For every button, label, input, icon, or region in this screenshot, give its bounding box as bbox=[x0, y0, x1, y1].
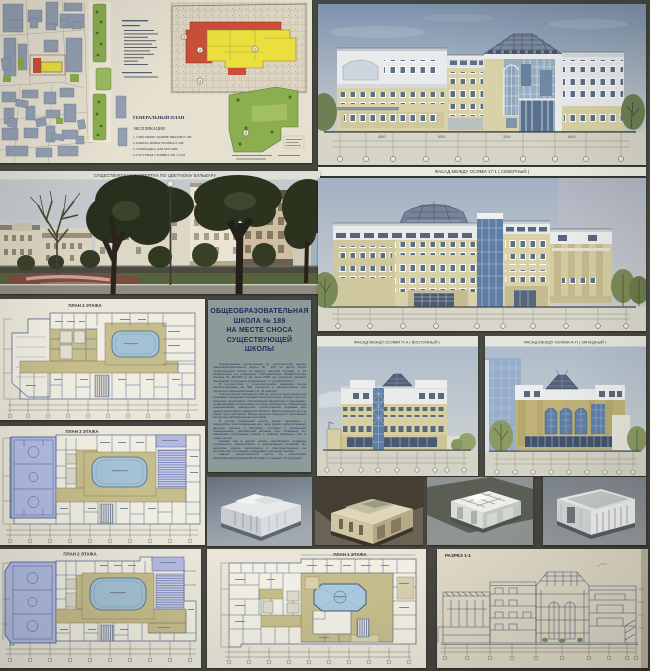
svg-text:3: 3 bbox=[183, 35, 185, 39]
svg-text:ПЛАН 4 ЭТАЖА: ПЛАН 4 ЭТАЖА bbox=[68, 303, 102, 308]
svg-text:2: 2 bbox=[199, 48, 201, 52]
svg-text:ФАСАД МЕЖДУ ОСЯМИ П-А ( ВОСТОЧ: ФАСАД МЕЖДУ ОСЯМИ П-А ( ВОСТОЧНЫЙ ) bbox=[354, 339, 440, 344]
svg-text:6000: 6000 bbox=[438, 135, 446, 139]
svg-text:2. ШКОЛА-НОВОСТРОЙКА N 189: 2. ШКОЛА-НОВОСТРОЙКА N 189 bbox=[133, 140, 184, 145]
svg-text:РАЗРЕЗ 1-1: РАЗРЕЗ 1-1 bbox=[445, 553, 471, 558]
svg-text:ПЛАН 3 ЭТАЖА: ПЛАН 3 ЭТАЖА bbox=[65, 429, 99, 434]
svg-text:ПЛАН 2 ЭТАЖА: ПЛАН 2 ЭТАЖА bbox=[63, 552, 97, 557]
svg-text:ГЕНЕРАЛЬНЫЙ ПЛАН: ГЕНЕРАЛЬНЫЙ ПЛАН bbox=[133, 115, 185, 120]
svg-text:ПЛАН 1 ЭТАЖА: ПЛАН 1 ЭТАЖА bbox=[333, 552, 367, 557]
svg-text:ФАСАД МЕЖДУ ОСЯМИ А-П ( ЗАПАДН: ФАСАД МЕЖДУ ОСЯМИ А-П ( ЗАПАДНЫЙ ) bbox=[524, 339, 608, 344]
svg-text:СУЩЕСТВУЮЩАЯ РАЗВЕРТКА ПО ЦВЕТ: СУЩЕСТВУЮЩАЯ РАЗВЕРТКА ПО ЦВЕТНОМУ БУЛЬВ… bbox=[94, 173, 217, 178]
svg-text:1: 1 bbox=[254, 47, 256, 51]
svg-text:4500: 4500 bbox=[378, 135, 386, 139]
svg-text:ЭКСПЛИКАЦИЯ: ЭКСПЛИКАЦИЯ bbox=[133, 126, 165, 131]
svg-text:6000: 6000 bbox=[568, 135, 576, 139]
svg-text:3. ПЛОЩАДКА ДЛЯ МУСОРА: 3. ПЛОЩАДКА ДЛЯ МУСОРА bbox=[133, 147, 178, 151]
svg-text:4: 4 bbox=[199, 79, 201, 83]
svg-text:4. ГОСТЕВАЯ СТОЯНКА НА 5 А/М: 4. ГОСТЕВАЯ СТОЯНКА НА 5 А/М bbox=[133, 153, 185, 157]
svg-text:3300: 3300 bbox=[503, 135, 511, 139]
svg-text:5: 5 bbox=[245, 131, 247, 135]
svg-text:1. СНОСИМОЕ ЗДАНИЕ ШКОЛЫ N 18: 1. СНОСИМОЕ ЗДАНИЕ ШКОЛЫ N 189 bbox=[133, 135, 192, 139]
